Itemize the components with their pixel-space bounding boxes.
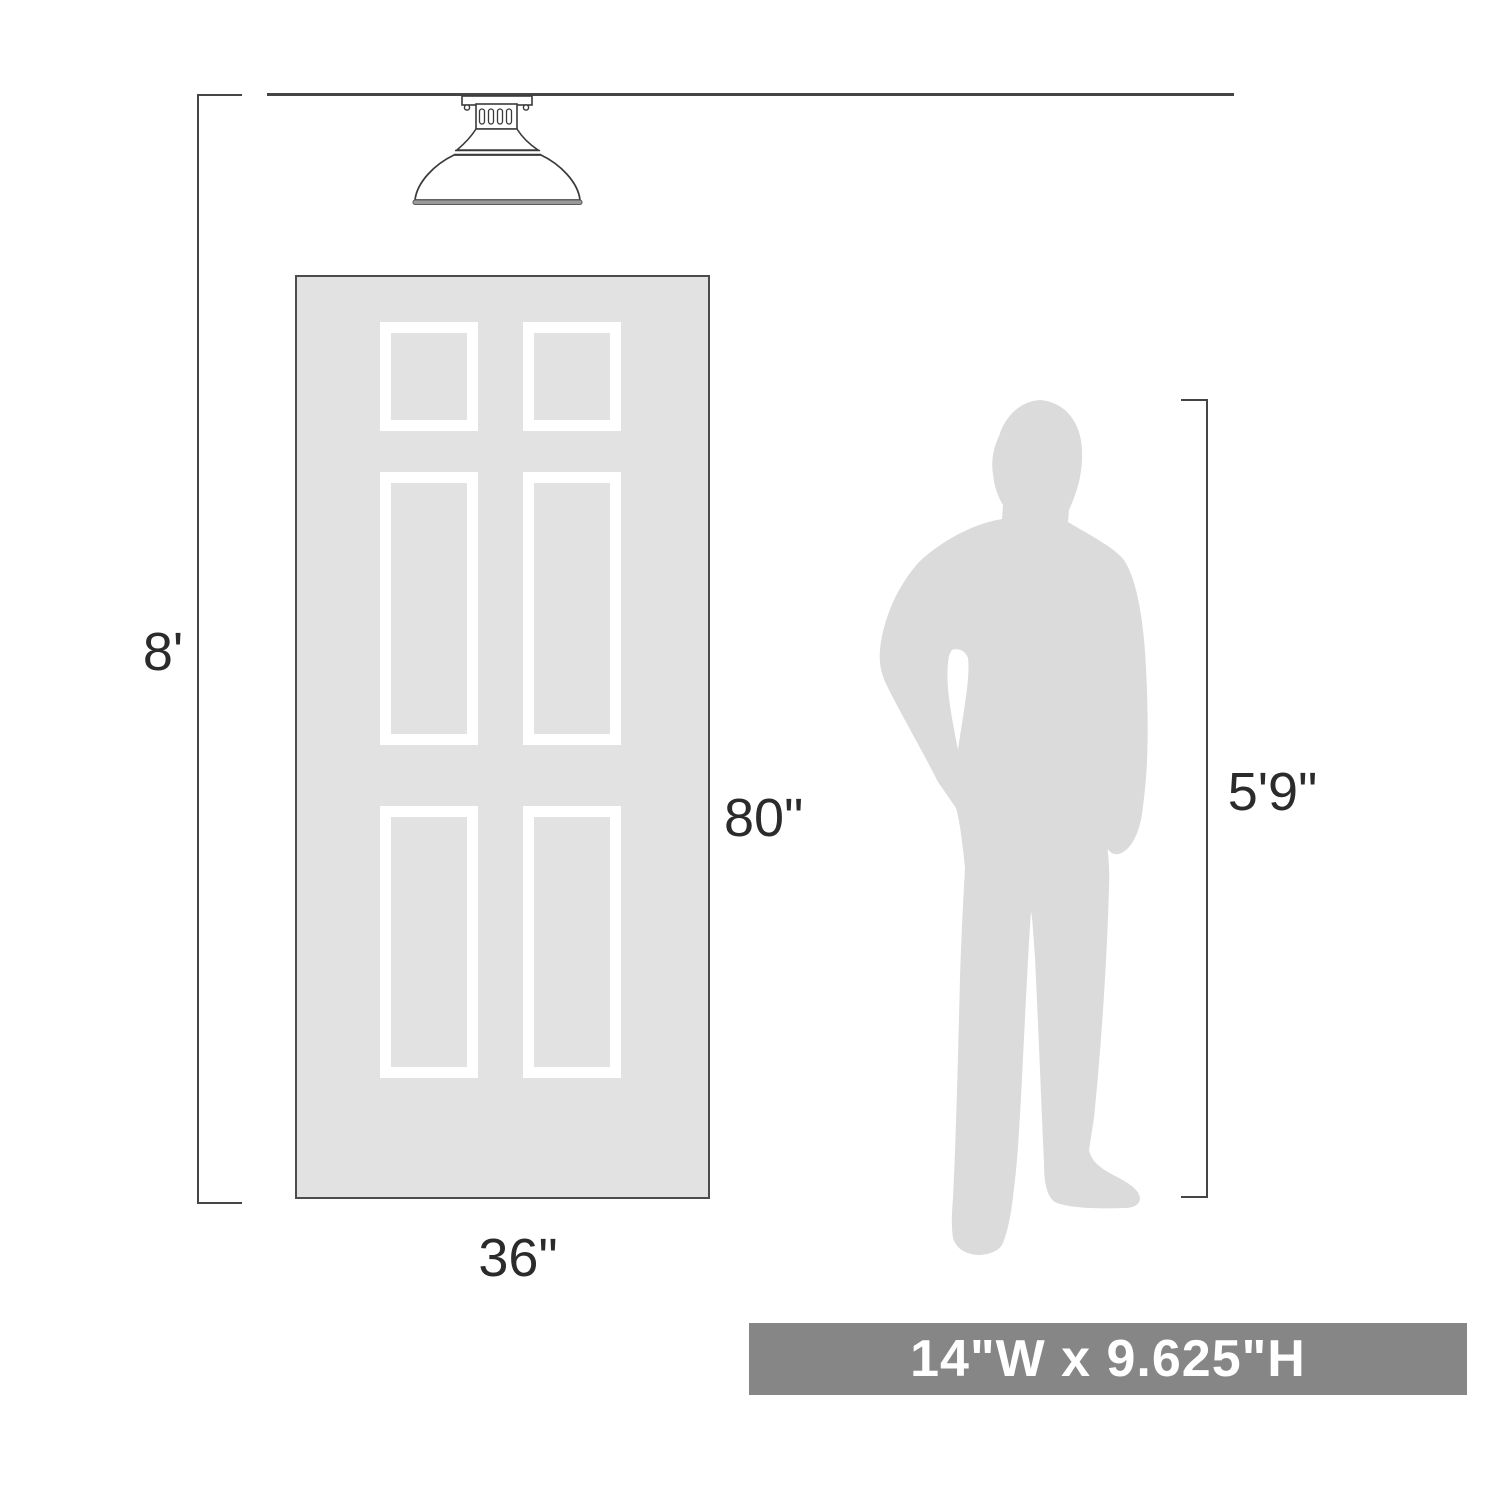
- door-panel: [523, 472, 621, 745]
- fixture-dome-shade: [415, 155, 580, 200]
- ceiling-height-label: 8': [118, 625, 208, 679]
- fixture-size-banner: 14"W x 9.625"H: [749, 1323, 1467, 1395]
- person-silhouette: [872, 398, 1162, 1258]
- ceiling-height-bottom-tick: [197, 1202, 242, 1204]
- fixture-screw-left: [464, 105, 469, 110]
- person-height-label: 5'9": [1210, 765, 1335, 819]
- door-panel: [523, 806, 621, 1078]
- fixture-size-label: 14"W x 9.625"H: [910, 1329, 1306, 1389]
- ceiling-light-icon: [405, 88, 595, 210]
- person-height-dimension-line: [1206, 399, 1208, 1198]
- door-panel: [523, 322, 621, 431]
- fixture-screw-right: [523, 105, 528, 110]
- fixture-rim: [413, 200, 582, 205]
- size-comparison-diagram: 8' 80": [0, 0, 1500, 1500]
- door-width-label: 36": [453, 1231, 583, 1285]
- door-height-label: 80": [724, 791, 814, 845]
- person-height-bottom-tick: [1181, 1196, 1208, 1198]
- fixture-flare: [457, 129, 538, 150]
- door-panel: [380, 806, 478, 1078]
- ceiling-height-top-tick: [197, 94, 242, 96]
- person-body: [880, 400, 1148, 1255]
- door-panel: [380, 472, 478, 745]
- door-panel: [380, 322, 478, 431]
- person-height-top-tick: [1181, 399, 1208, 401]
- door: [295, 275, 710, 1199]
